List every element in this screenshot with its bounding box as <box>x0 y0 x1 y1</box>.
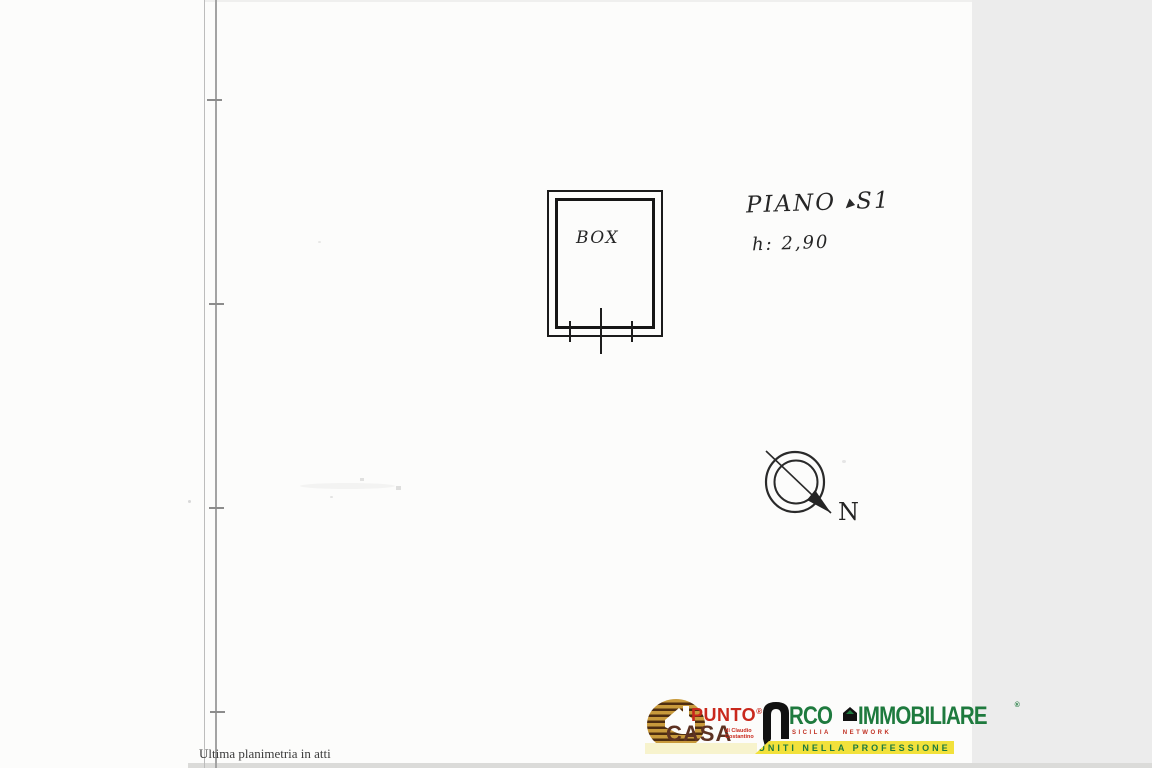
margin-line-right <box>215 0 217 768</box>
door-centerline <box>600 308 602 354</box>
registered-mark: ® <box>1015 702 1020 709</box>
scan-smudge <box>360 478 364 481</box>
banner-pale-strip <box>645 743 757 754</box>
door-tick-right <box>631 321 633 342</box>
north-compass-icon: N <box>752 438 870 533</box>
arco-brand-rest: RCO <box>789 702 832 731</box>
floor-value: S1 <box>856 187 891 214</box>
arco-house-icon <box>843 707 857 721</box>
fold-mark <box>209 303 224 305</box>
scan-smudge <box>396 486 401 490</box>
scan-smudge <box>188 500 191 503</box>
fold-mark <box>207 99 222 101</box>
scan-smudge <box>300 483 395 489</box>
margin-line-left <box>204 0 205 768</box>
arco-network-line: SICILIA NETWORK <box>792 730 891 736</box>
height-annotation: h: 2,90 <box>752 232 830 256</box>
floor-word: PIANO <box>746 189 837 218</box>
scanner-edge-bottom <box>188 763 1152 768</box>
scanned-floor-plan-page: BOX PIANOS1 h: 2,90 N Ultima planimetria… <box>0 0 1152 768</box>
scanner-background-right <box>972 0 1152 768</box>
profession-banner: UNITI NELLA PROFESSIONE <box>755 741 954 754</box>
punto-casa-byline: di Claudio Costantino <box>725 728 754 740</box>
arco-brand-row: RCOIMMOBILIARE® <box>789 702 1020 731</box>
door-tick-left <box>569 321 571 342</box>
banner-text: UNITI NELLA PROFESSIONE <box>758 743 950 753</box>
arco-brand-second: IMMOBILIARE <box>858 702 987 731</box>
pen-mark <box>843 197 855 208</box>
fold-mark <box>209 507 224 509</box>
room-wall-inner <box>555 198 655 329</box>
scan-smudge <box>330 496 333 498</box>
footer-note: Ultima planimetria in atti <box>199 746 331 762</box>
scan-smudge <box>318 241 321 243</box>
compass-north-letter: N <box>838 498 859 526</box>
fold-mark <box>210 711 225 713</box>
floor-annotation: PIANOS1 <box>746 187 891 218</box>
byline-line2: Costantino <box>725 734 754 740</box>
room-label: BOX <box>576 228 619 248</box>
scan-smudge <box>842 460 846 463</box>
scanner-edge-top <box>205 0 972 2</box>
